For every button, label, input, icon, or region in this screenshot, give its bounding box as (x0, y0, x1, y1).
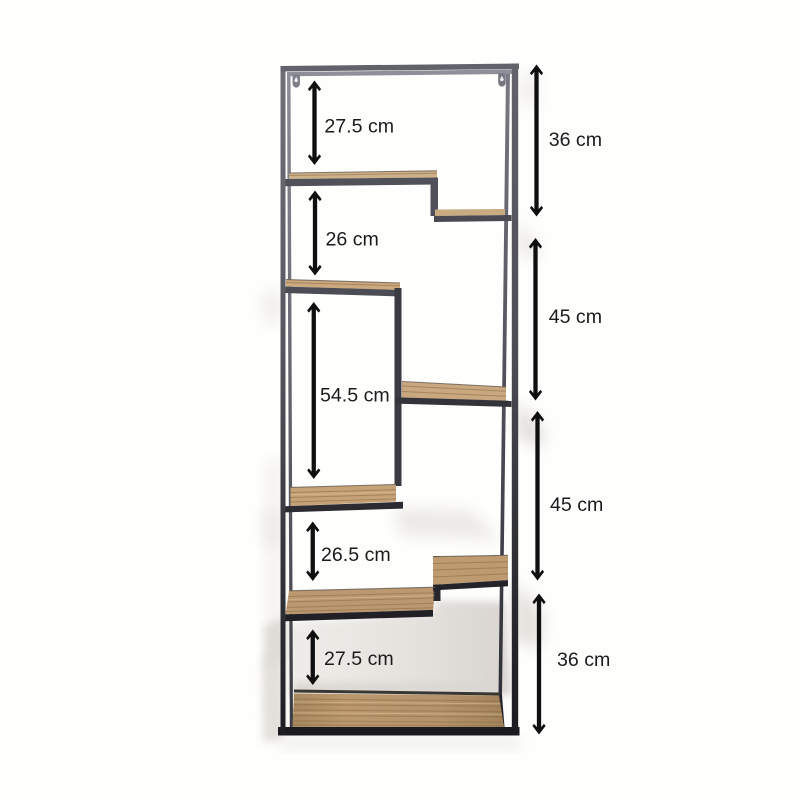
svg-text:27.5 cm: 27.5 cm (324, 115, 394, 137)
svg-text:36 cm: 36 cm (549, 129, 602, 151)
svg-text:45 cm: 45 cm (549, 306, 602, 328)
svg-text:26.5 cm: 26.5 cm (321, 544, 391, 566)
svg-text:45 cm: 45 cm (550, 494, 603, 516)
svg-text:36 cm: 36 cm (557, 649, 610, 671)
svg-text:26 cm: 26 cm (326, 228, 379, 250)
svg-text:27.5 cm: 27.5 cm (324, 648, 394, 670)
svg-text:54.5 cm: 54.5 cm (320, 384, 390, 406)
